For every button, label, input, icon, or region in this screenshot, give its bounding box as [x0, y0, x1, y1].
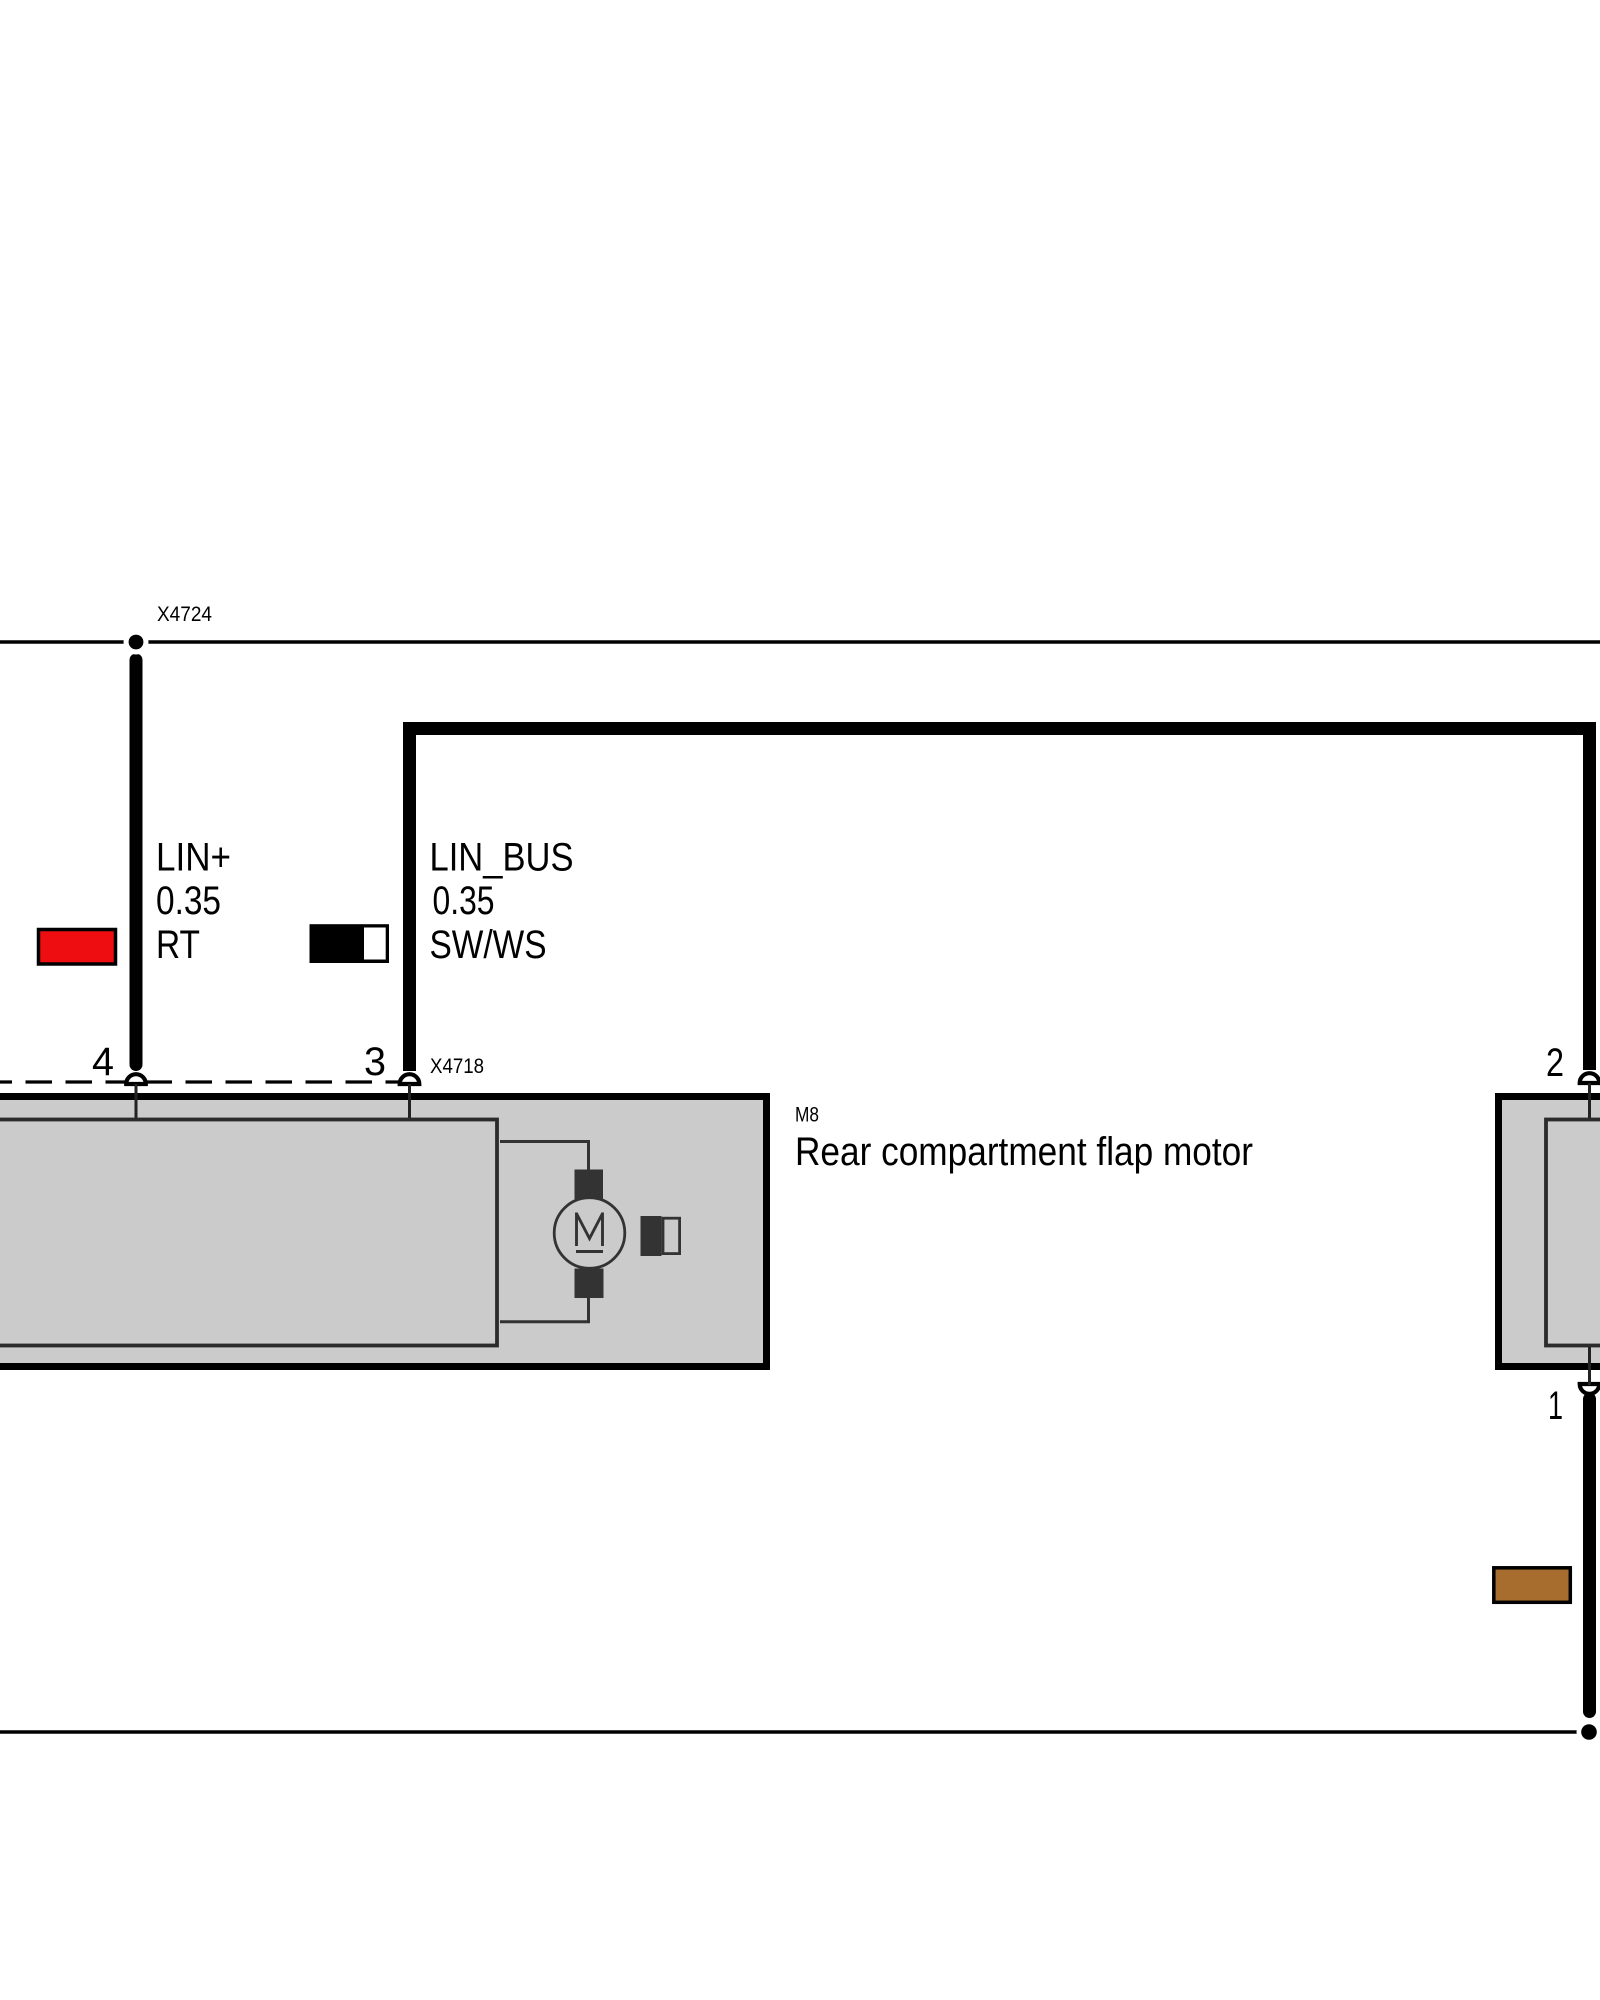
svg-text:X4724: X4724 [157, 602, 212, 626]
svg-text:2: 2 [1546, 1041, 1564, 1085]
svg-text:0.35: 0.35 [433, 879, 495, 923]
svg-text:X4718: X4718 [430, 1054, 484, 1078]
svg-text:M8: M8 [795, 1103, 819, 1127]
svg-text:1: 1 [1548, 1384, 1563, 1428]
svg-text:LIN_BUS: LIN_BUS [430, 836, 574, 880]
svg-text:RT: RT [156, 923, 200, 967]
svg-text:4: 4 [92, 1040, 114, 1084]
svg-text:3: 3 [364, 1040, 386, 1084]
svg-text:0.35: 0.35 [156, 879, 221, 923]
svg-text:SW/WS: SW/WS [430, 923, 547, 967]
svg-text:LIN+: LIN+ [156, 836, 231, 880]
svg-text:Rear compartment flap motor: Rear compartment flap motor [795, 1130, 1253, 1174]
